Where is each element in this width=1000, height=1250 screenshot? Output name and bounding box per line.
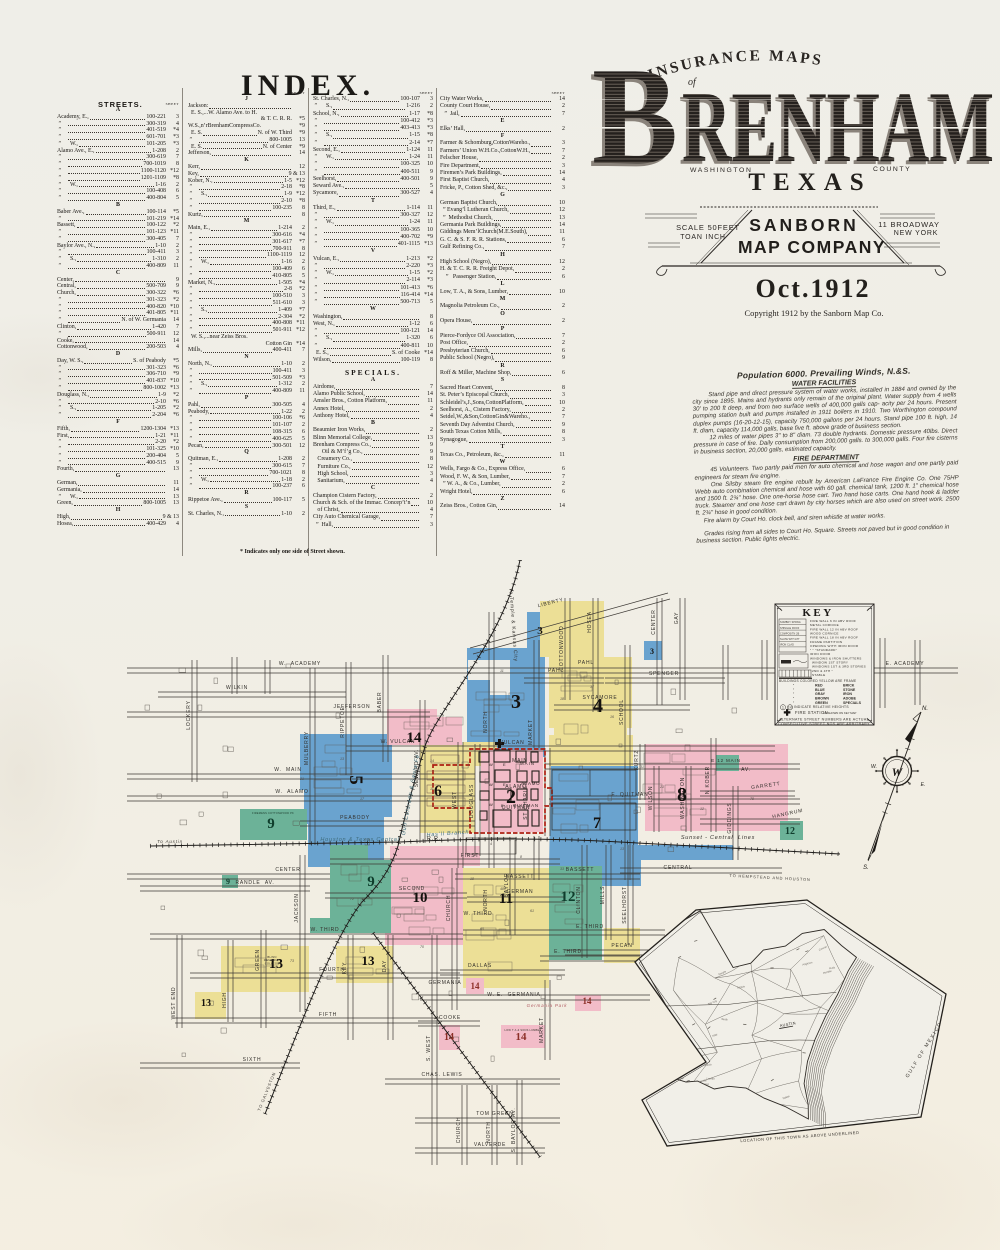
svg-text:NORTH: NORTH (486, 1121, 492, 1143)
svg-text:21: 21 (659, 785, 664, 789)
svg-text:E: E (503, 762, 506, 767)
svg-text:SPENGER: SPENGER (649, 671, 679, 677)
svg-text:13: 13 (340, 757, 344, 761)
svg-text:Sunset - Central Lines: Sunset - Central Lines (681, 835, 755, 841)
svg-text:W: W (489, 762, 493, 767)
svg-text:STABLE: STABLE (812, 673, 825, 677)
svg-text:3: 3 (511, 691, 521, 713)
svg-text:10: 10 (413, 890, 428, 906)
svg-text:W. THIRD: W. THIRD (464, 911, 493, 917)
svg-text:14: 14 (430, 759, 434, 763)
svg-text:11: 11 (430, 787, 434, 791)
svg-text:E. THIRD: E. THIRD (554, 949, 582, 955)
svg-text:LOW T A & SONS LUMBER: LOW T A & SONS LUMBER (505, 1028, 542, 1032)
svg-text:INDICATE RELATIVE HEIGHTS: INDICATE RELATIVE HEIGHTS (794, 705, 849, 709)
svg-text:FIREMENS COTTONWOOD PK: FIREMENS COTTONWOOD PK (252, 811, 294, 815)
svg-text:70: 70 (420, 945, 424, 949)
svg-text:GERMANIA: GERMANIA (428, 980, 461, 986)
svg-text:PAHL: PAHL (578, 660, 594, 666)
svg-text:HIGH: HIGH (222, 992, 228, 1008)
svg-text:7: 7 (593, 815, 601, 832)
svg-text:Laredo: Laredo (707, 1077, 716, 1081)
svg-text:DAY: DAY (382, 960, 388, 972)
svg-text:MAP COMPANY: MAP COMPANY (738, 237, 886, 257)
svg-text:9: 9 (267, 816, 275, 832)
svg-text:DOUGLASS: DOUGLASS (469, 784, 475, 818)
svg-text:18: 18 (560, 697, 564, 701)
svg-text:Oct.1912: Oct.1912 (756, 274, 871, 303)
svg-text:W. ALAMO: W. ALAMO (275, 789, 308, 795)
svg-text:TOM GREEN: TOM GREEN (476, 1111, 513, 1117)
svg-text:13: 13 (362, 953, 376, 968)
svg-text:5: 5 (345, 775, 366, 785)
svg-text:CENTER: CENTER (275, 867, 300, 873)
svg-text:4: 4 (593, 695, 603, 717)
svg-text:AV.: AV. (741, 767, 751, 773)
svg-text:TO HEMPSTEAD AND HOUSTON: TO HEMPSTEAD AND HOUSTON (729, 873, 810, 882)
svg-text:21: 21 (299, 777, 304, 781)
svg-text:Sealy: Sealy (721, 1017, 729, 1022)
svg-text:PEABODY: PEABODY (340, 815, 370, 821)
svg-text:14: 14 (471, 981, 481, 991)
svg-text:COOKE: COOKE (439, 1015, 461, 1021)
svg-text:CONSECUTIVE STREET NOS ARE ARB: CONSECUTIVE STREET NOS ARE ARBITRARY (778, 722, 870, 726)
svg-text:65: 65 (480, 927, 484, 931)
svg-text:ST CHARLES: ST CHARLES (523, 780, 529, 819)
svg-text:13: 13 (201, 998, 211, 1009)
svg-text:W. THIRD: W. THIRD (311, 927, 340, 933)
svg-text:S.: S. (863, 865, 869, 871)
svg-text:COTTONWOOD: COTTONWOOD (559, 625, 565, 670)
svg-text:MULBERRY: MULBERRY (304, 731, 310, 765)
svg-text:73: 73 (290, 959, 294, 963)
svg-text:FIFTH: FIFTH (319, 1012, 337, 1018)
svg-text:SHINGLE ROOF: SHINGLE ROOF (780, 627, 800, 630)
svg-text:CLINTON: CLINTON (576, 886, 582, 913)
svg-text:BUILDINGS COLORED YELLOW ARE F: BUILDINGS COLORED YELLOW ARE FRAME (779, 679, 856, 683)
svg-text:MAIN: MAIN (512, 758, 528, 764)
svg-text:W. E. GERMANIA: W. E. GERMANIA (487, 992, 540, 998)
svg-text:61: 61 (530, 909, 534, 913)
svg-text:SLATE WTH ATT: SLATE WTH ATT (780, 638, 800, 641)
svg-text:4: 4 (490, 842, 492, 846)
svg-text:11: 11 (499, 891, 513, 907)
svg-text:VULCAN: VULCAN (499, 740, 524, 746)
svg-text:48: 48 (500, 887, 504, 891)
svg-text:W. ACADEMY: W. ACADEMY (279, 661, 321, 667)
svg-text:11 BROADWAY: 11 BROADWAY (878, 220, 940, 229)
svg-text:TOAN INCH: TOAN INCH (680, 234, 726, 241)
svg-text:18: 18 (470, 877, 474, 881)
svg-text:SCALE 50FEET: SCALE 50FEET (676, 223, 740, 232)
svg-text:S. WEST: S. WEST (426, 1035, 432, 1061)
svg-text:MARKET: MARKET (528, 719, 534, 745)
svg-text:13: 13 (620, 847, 624, 851)
svg-text:W. MAIN: W. MAIN (274, 767, 302, 773)
svg-text:SANBORN: SANBORN (749, 215, 858, 235)
svg-text:TEXAS: TEXAS (748, 169, 871, 196)
svg-text:9: 9 (226, 877, 230, 886)
svg-text:33: 33 (560, 867, 564, 871)
svg-text:6: 6 (434, 783, 442, 800)
svg-text:WASHINGTON: WASHINGTON (690, 167, 752, 174)
svg-text:HOSEA: HOSEA (587, 611, 593, 633)
svg-text:3: 3 (537, 625, 543, 637)
svg-text:Germania Park: Germania Park (527, 1003, 568, 1008)
svg-text:W.: W. (871, 764, 877, 770)
svg-text:NORTH: NORTH (483, 711, 489, 733)
svg-text:RIPPETOE: RIPPETOE (340, 706, 346, 738)
svg-text:FOURTH: FOURTH (319, 967, 345, 973)
svg-text:WILKIN: WILKIN (226, 685, 248, 691)
svg-text:RANDLE AV.: RANDLE AV. (235, 880, 274, 886)
svg-text:11: 11 (500, 669, 504, 673)
svg-text:B: B (592, 39, 678, 194)
svg-text:ALTERNATE STREET NUMBERS ARE A: ALTERNATE STREET NUMBERS ARE ACTUAL (779, 717, 869, 721)
svg-text:12: 12 (700, 807, 704, 811)
svg-text:78: 78 (750, 797, 754, 801)
svg-text:1: 1 (782, 706, 784, 710)
svg-text:SIXTH: SIXTH (243, 1057, 262, 1063)
svg-text:1½: 1½ (788, 706, 793, 710)
svg-text:12: 12 (785, 826, 795, 837)
svg-text:S. BAYLOR AV.: S. BAYLOR AV. (511, 1107, 517, 1152)
svg-text:WEST: WEST (452, 791, 458, 809)
svg-text:DALLAS: DALLAS (468, 963, 492, 969)
svg-text:E. QUITMAN: E. QUITMAN (611, 792, 648, 798)
svg-text:IRON CLAD: IRON CLAD (780, 644, 794, 647)
svg-text:LOCKERY: LOCKERY (186, 700, 192, 729)
svg-text:14: 14 (444, 1032, 454, 1043)
svg-text:CHURCH: CHURCH (446, 895, 452, 921)
svg-text:14: 14 (516, 1031, 528, 1043)
svg-text:16: 16 (610, 715, 614, 719)
svg-text:W: W (489, 802, 493, 807)
svg-text:72: 72 (350, 897, 354, 901)
svg-text:WILSON: WILSON (648, 786, 654, 811)
svg-text:8: 8 (677, 784, 687, 806)
svg-text:FIRST: FIRST (461, 853, 479, 859)
svg-text:W: W (489, 782, 493, 787)
svg-text:N KOBER: N KOBER (705, 766, 711, 794)
svg-text:CENTRAL: CENTRAL (664, 865, 693, 871)
svg-text:BABER: BABER (377, 692, 383, 713)
svg-text:E.: E. (921, 782, 926, 788)
svg-text:PECAN: PECAN (611, 943, 632, 949)
svg-text:Houston & Texas Central: Houston & Texas Central (320, 837, 399, 843)
svg-text:CHURCH: CHURCH (456, 1117, 462, 1143)
svg-text:KEY: KEY (802, 607, 833, 619)
svg-text:GREEN: GREEN (255, 949, 261, 971)
svg-text:AS SHOWN ON KEY MAP: AS SHOWN ON KEY MAP (823, 711, 856, 715)
svg-text:SEELHORST: SEELHORST (622, 886, 628, 924)
svg-text:E. THIRD: E. THIRD (576, 924, 604, 930)
svg-text:MILLS: MILLS (600, 886, 606, 904)
svg-text:WEST END: WEST END (171, 987, 177, 1020)
svg-text:E. ACADEMY: E. ACADEMY (886, 661, 925, 667)
svg-text:CENTER: CENTER (651, 609, 657, 634)
svg-text:SOMBDY SPRNG: SOMBDY SPRNG (780, 621, 801, 624)
svg-text:9: 9 (367, 874, 375, 890)
svg-text:W: W (892, 765, 904, 779)
svg-text:COUNTY: COUNTY (873, 166, 911, 173)
svg-text:Copyright 1912 by the Sanborn: Copyright 1912 by the Sanborn Map Co. (744, 308, 883, 318)
svg-text:8: 8 (520, 855, 522, 859)
svg-text:JACKSON: JACKSON (294, 893, 300, 922)
svg-text:SCHOOL: SCHOOL (619, 699, 625, 725)
svg-text:GIDDINGS: GIDDINGS (727, 802, 733, 833)
svg-text:2: 2 (506, 786, 516, 808)
svg-text:NEW YORK: NEW YORK (894, 230, 938, 237)
svg-text:E 12 MAIN: E 12 MAIN (711, 758, 740, 763)
svg-text:12: 12 (561, 889, 576, 905)
svg-text:BASSETT: BASSETT (506, 874, 534, 880)
svg-text:31: 31 (640, 765, 644, 769)
svg-text:CHAS. LEWIS: CHAS. LEWIS (421, 1072, 462, 1078)
svg-text:GAY: GAY (674, 612, 680, 625)
svg-text:To Austin: To Austin (157, 839, 183, 844)
svg-text:14: 14 (583, 996, 593, 1006)
svg-text:N.: N. (922, 706, 928, 712)
svg-text:KEY: KEY (342, 962, 348, 974)
svg-text:NORTH: NORTH (483, 889, 489, 911)
svg-text:BASSETT: BASSETT (566, 867, 594, 873)
svg-text:Wharton: Wharton (674, 1051, 684, 1055)
svg-text:Gulf Colorado & Santa Fé: Gulf Colorado & Santa Fé (401, 754, 421, 836)
svg-text:3: 3 (650, 647, 654, 656)
svg-text:14: 14 (407, 730, 423, 746)
svg-text:COMPOSITN 2B: COMPOSITN 2B (780, 632, 800, 635)
